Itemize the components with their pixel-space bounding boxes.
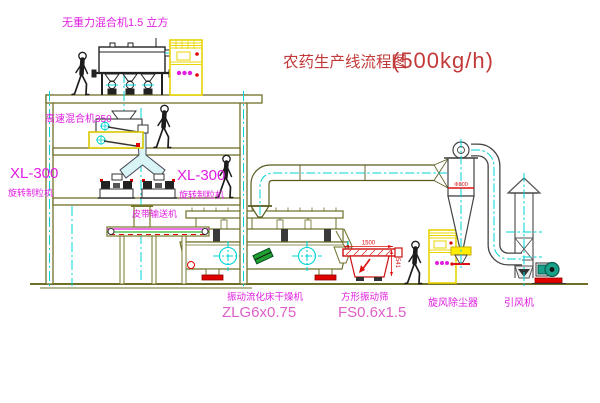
label-high-speed-mixer: 高速混合机350: [45, 112, 112, 125]
gravity-free-mixer: [92, 38, 182, 95]
exhaust-duct: [248, 159, 448, 217]
dryer-foot-pad: [202, 275, 223, 280]
dryer-foot-pad: [315, 275, 336, 280]
indicator-light: [195, 73, 199, 77]
label-belt-conveyor: 皮带输送机: [132, 208, 177, 219]
label-granulator-center-name: 旋转制粒机: [179, 189, 224, 200]
cabinet-knob: [177, 71, 181, 75]
cabinet-screen: [177, 52, 190, 60]
granulator-center: [140, 174, 177, 198]
label-cyclone: 旋风除尘器: [428, 296, 478, 309]
cabinet-knob: [182, 71, 186, 75]
label-granulator-left-name: 旋转制粒机: [8, 187, 53, 198]
cabinet-screen: [434, 241, 446, 248]
dimension-cyclone: Φ800: [454, 182, 468, 188]
label-fan: 引风机: [504, 296, 534, 309]
granulator-left: [98, 174, 135, 198]
control-cabinet-right: [429, 230, 456, 283]
label-dryer-name: 振动流化床干燥机: [227, 291, 304, 303]
label-sieve-model: FS0.6x1.5: [338, 304, 406, 321]
dimension-sieve-height: 541: [394, 258, 400, 269]
top-deck: [46, 95, 262, 103]
person-figure: [72, 52, 89, 94]
person-figure: [405, 241, 422, 283]
ground-line: [30, 284, 588, 288]
vibrating-sieve: [336, 229, 402, 281]
label-gravity-free-mixer: 无重力混合机1.5 立方: [62, 15, 168, 29]
label-dryer-model: ZLG6x0.75: [222, 304, 296, 321]
indicator-light: [195, 52, 199, 56]
cabinet-knob: [445, 261, 449, 265]
fluid-bed-dryer: [180, 208, 352, 281]
induced-draft-fan: [532, 263, 566, 284]
cabinet-knob: [435, 261, 439, 265]
cad-process-flow-drawing: 无重力混合机1.5 立方 农药生产线流程图 (500kg/h) XL-300 旋…: [0, 0, 600, 403]
sieve-vibrator: [395, 248, 402, 257]
fan-base: [535, 278, 562, 283]
person-figure: [154, 105, 171, 147]
control-cabinet-top: [170, 40, 202, 95]
mixer-discharge-valves: [105, 74, 155, 94]
label-sieve-name: 方形振动筛: [341, 291, 389, 303]
label-granulator-left-model: XL-300: [10, 165, 58, 182]
page-title: 农药生产线流程图: [283, 53, 407, 71]
cabinet-knob: [188, 71, 192, 75]
page-title-capacity: (500kg/h): [392, 48, 494, 73]
cabinet-knob: [440, 261, 444, 265]
dimension-sieve-length: 1500: [362, 241, 376, 247]
indicator-light: [449, 241, 452, 244]
cyclone-outlet-duct: [471, 150, 522, 259]
label-granulator-center-model: XL-300: [177, 167, 225, 184]
